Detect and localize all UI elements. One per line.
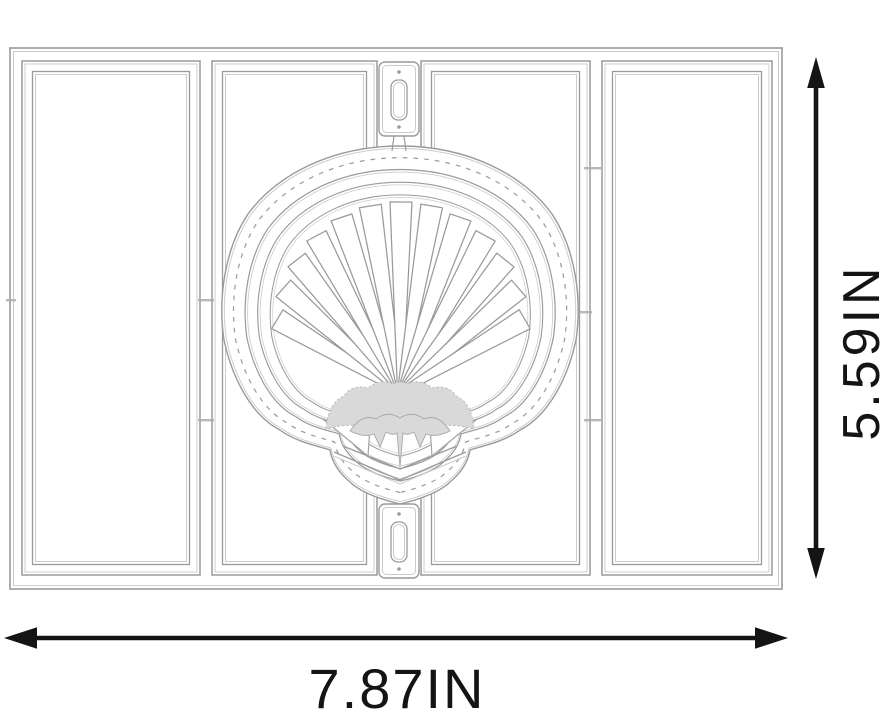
height-dimension: 5.59IN <box>807 57 888 579</box>
height-arrow-head-bottom <box>807 548 825 579</box>
height-dimension-label: 5.59IN <box>833 263 888 440</box>
width-arrow-head-left <box>4 627 37 649</box>
width-arrow-head-right <box>755 627 788 649</box>
die-product-diagram: 5.59IN 7.87IN <box>0 0 888 712</box>
width-dimension-label: 7.87IN <box>309 657 486 712</box>
width-dimension: 7.87IN <box>4 627 788 712</box>
die-diagram: 5.59IN 7.87IN <box>0 0 888 712</box>
height-arrow-head-top <box>807 57 825 88</box>
